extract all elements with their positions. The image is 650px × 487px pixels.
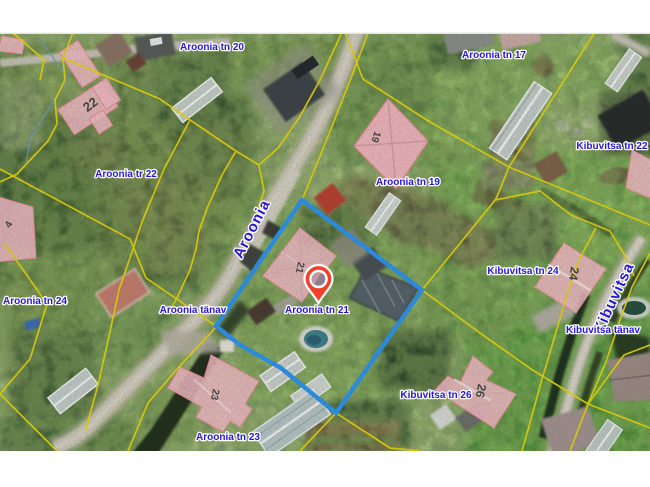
svg-text:Aroonia tn 24: Aroonia tn 24 bbox=[3, 296, 67, 307]
svg-text:Aroonia tr 22: Aroonia tr 22 bbox=[95, 169, 157, 180]
svg-text:Aroonia tn 20: Aroonia tn 20 bbox=[180, 42, 244, 53]
svg-text:Aroonia tn 19: Aroonia tn 19 bbox=[376, 177, 440, 188]
svg-text:Aroonia tn 23: Aroonia tn 23 bbox=[196, 432, 260, 443]
svg-text:Kibuvitsa tänav: Kibuvitsa tänav bbox=[566, 325, 640, 336]
svg-text:Kibuvitsa tn 24: Kibuvitsa tn 24 bbox=[487, 266, 559, 277]
svg-text:Aroonia tn 17: Aroonia tn 17 bbox=[462, 50, 526, 61]
svg-text:Aroonia tänav: Aroonia tänav bbox=[160, 305, 227, 316]
svg-text:Kibuvitsa tn 22: Kibuvitsa tn 22 bbox=[576, 141, 648, 152]
svg-text:Aroonia tn 21: Aroonia tn 21 bbox=[285, 305, 349, 316]
svg-text:Kibuvitsa tn 26: Kibuvitsa tn 26 bbox=[400, 390, 472, 401]
